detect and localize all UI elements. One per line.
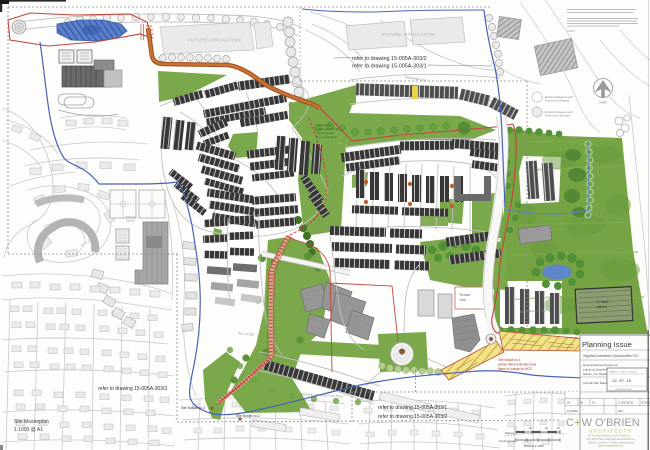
svg-text:Targeted Investment Opportunit: Targeted Investment Opportunities PLC	[583, 354, 640, 358]
svg-text:refer to drawing 15-005A-303/2: refer to drawing 15-005A-303/2	[378, 414, 447, 420]
svg-text:35-39 Mount Abbey Street, Dubl: 35-39 Mount Abbey Street, Dublin 1	[588, 434, 631, 438]
svg-text:refer to drawing 15-005A-303/3: refer to drawing 15-005A-303/3	[98, 386, 167, 392]
svg-text:refer to drawing 15-005A-303/2: refer to drawing 15-005A-303/2	[352, 56, 427, 62]
svg-text:Site Notice no.3: Site Notice no.3	[181, 406, 205, 410]
svg-text:FUTURE APPLICATION: FUTURE APPLICATION	[382, 32, 435, 37]
svg-text:C: C	[566, 417, 574, 429]
svg-text:Planning Issue: Planning Issue	[582, 340, 632, 349]
svg-text:Metres: Metres	[505, 431, 515, 435]
svg-text:refer to drawing 15-005A-303/1: refer to drawing 15-005A-303/1	[352, 64, 427, 70]
svg-text:yellow hatch indicates area: yellow hatch indicates area	[498, 363, 536, 367]
svg-text:Existing Hedgerow and: Existing Hedgerow and	[545, 95, 573, 99]
svg-text:refer to drawing 15-005A-303/1: refer to drawing 15-005A-303/1	[378, 405, 447, 411]
svg-text:12-07-16: 12-07-16	[612, 380, 632, 384]
svg-text:PLANNING DEPT: PLANNING DEPT	[615, 388, 633, 391]
svg-text:north: north	[599, 101, 607, 105]
svg-text:FUTURE APPLICATION: FUTURE APPLICATION	[188, 38, 241, 43]
svg-text:1.7 acre: 1.7 acre	[596, 300, 608, 304]
svg-text:302: 302	[618, 409, 623, 413]
svg-text:Centimetres: Centimetres	[499, 439, 516, 443]
svg-text:Site Notice no.2: Site Notice no.2	[236, 414, 260, 418]
svg-text:1:1000 @ A1: 1:1000 @ A1	[618, 401, 634, 405]
svg-text:2b: 2b	[580, 401, 583, 405]
svg-text:Terrace: Terrace	[459, 293, 470, 297]
svg-text:W O’BRIEN: W O’BRIEN	[582, 417, 640, 429]
svg-text:ARCHITECTS: ARCHITECTS	[589, 428, 632, 433]
svg-text:taken in charge by MCC: taken in charge by MCC	[498, 367, 533, 371]
svg-text:www.cwoarchitects.ie: www.cwoarchitects.ie	[598, 444, 624, 448]
svg-text:Yard: Yard	[459, 298, 466, 302]
svg-text:school: school	[597, 305, 607, 309]
svg-text:Trees to be removed: Trees to be removed	[545, 114, 570, 118]
svg-text:t 01 539 5739 e admin@cwoarch: t 01 539 5739 e admin@cwoarchitects.ie	[586, 437, 635, 441]
svg-text:SCALE 1:1000: SCALE 1:1000	[524, 444, 544, 448]
svg-text:School: School	[126, 219, 135, 223]
svg-text:MEATH COUNTY COUNCIL: MEATH COUNTY COUNCIL	[610, 371, 639, 374]
svg-text:24: 24	[567, 401, 570, 405]
svg-text:Trees to be retained: Trees to be retained	[545, 99, 569, 103]
svg-text:Existing Hedgerow and: Existing Hedgerow and	[545, 110, 573, 114]
svg-text:A1: A1	[592, 401, 596, 405]
svg-text:Navan, Co. Meath: Navan, Co. Meath	[583, 372, 608, 376]
svg-text:Site Notice no 1:: Site Notice no 1:	[498, 358, 522, 362]
svg-text:15-005A: 15-005A	[567, 409, 578, 413]
svg-text:1:1000 @ A1: 1:1000 @ A1	[14, 427, 43, 433]
svg-text:Site Masterplan: Site Masterplan	[14, 419, 49, 425]
svg-text:after which lands: after which lands	[316, 135, 338, 139]
svg-text:Residential Development: Residential Development	[583, 363, 618, 367]
svg-text:+: +	[574, 417, 580, 429]
